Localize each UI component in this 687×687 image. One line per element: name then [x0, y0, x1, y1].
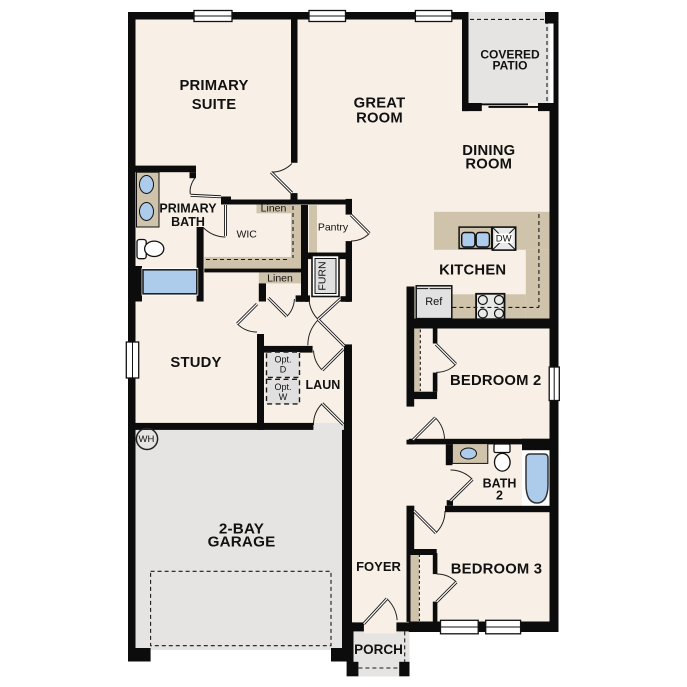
svg-text:Pantry: Pantry: [318, 222, 349, 234]
svg-text:WIC: WIC: [236, 229, 257, 241]
svg-text:W: W: [279, 392, 288, 402]
svg-text:BEDROOM 3: BEDROOM 3: [451, 562, 542, 578]
svg-text:ROOM: ROOM: [356, 110, 403, 126]
svg-text:BEDROOM 2: BEDROOM 2: [450, 373, 541, 389]
svg-text:ROOM: ROOM: [465, 156, 512, 172]
svg-text:STUDY: STUDY: [170, 355, 221, 371]
svg-text:FOYER: FOYER: [356, 559, 401, 574]
svg-text:DW: DW: [496, 234, 512, 245]
svg-text:PRIMARY: PRIMARY: [179, 78, 248, 94]
svg-text:PATIO: PATIO: [493, 59, 528, 73]
svg-text:GREAT: GREAT: [354, 95, 406, 111]
svg-text:KITCHEN: KITCHEN: [439, 263, 506, 279]
svg-text:SUITE: SUITE: [192, 97, 237, 113]
svg-text:Opt.: Opt.: [274, 382, 291, 392]
svg-text:FURN: FURN: [317, 261, 329, 290]
svg-text:Ref: Ref: [425, 296, 443, 308]
svg-text:2: 2: [496, 489, 503, 503]
svg-text:Opt.: Opt.: [274, 355, 291, 365]
svg-text:GARAGE: GARAGE: [208, 534, 276, 551]
svg-text:PRIMARY: PRIMARY: [159, 202, 217, 216]
svg-text:BATH: BATH: [171, 215, 205, 229]
svg-text:Linen: Linen: [267, 273, 293, 285]
svg-text:PORCH: PORCH: [354, 642, 403, 657]
svg-text:D: D: [280, 364, 287, 374]
svg-text:LAUN: LAUN: [306, 378, 341, 392]
svg-text:WH: WH: [138, 434, 154, 445]
